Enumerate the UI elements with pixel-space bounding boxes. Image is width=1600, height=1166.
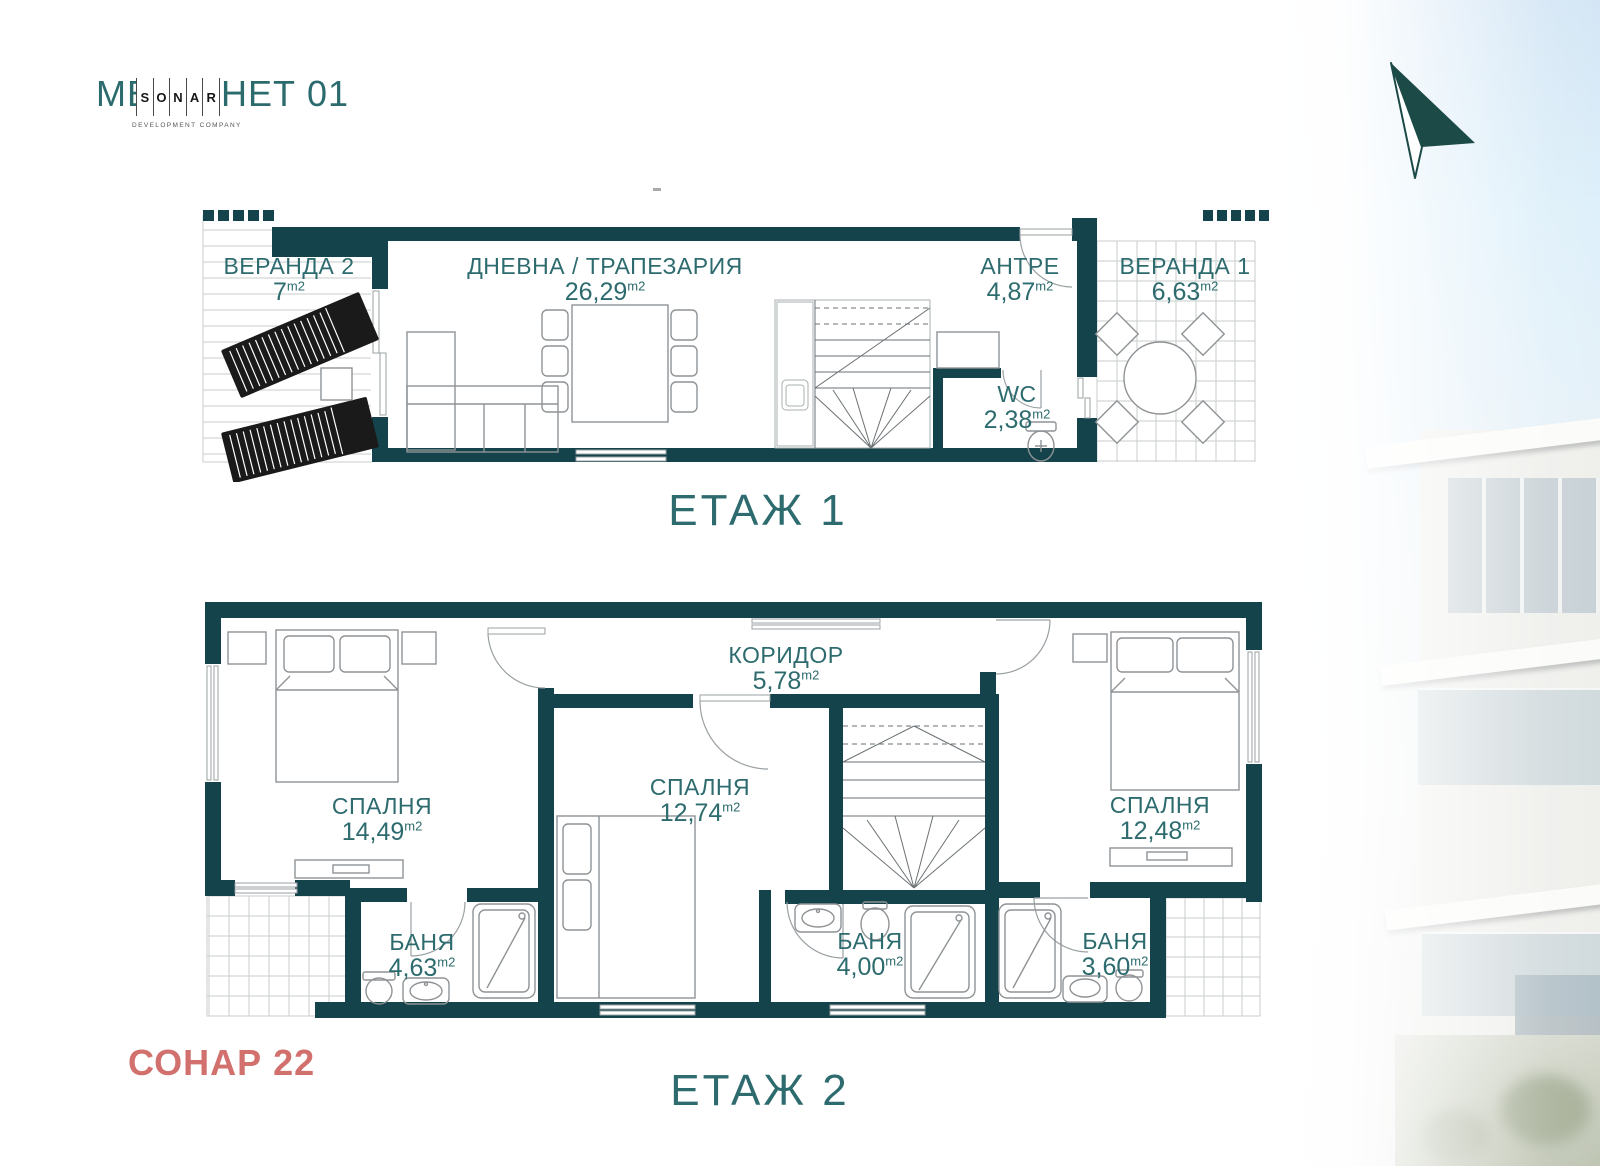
room-label-bedroom-3: СПАЛНЯ 12,48m2 [1065,793,1255,845]
room-name: ВЕРАНДА 2 [198,254,380,279]
area-unit: m2 [404,819,422,834]
kitchen-counter [937,332,999,368]
floorplan-page: МЕ НЕТ 01 S O N A R DEVELOPMENT COMPANY [0,0,1600,1166]
dining-set [542,305,697,422]
room-area-value: 7 [273,278,287,306]
room-area: 4,00m2 [785,954,955,981]
room-area: 7m2 [198,279,380,306]
room-name: СПАЛНЯ [605,775,795,800]
sonar-logo: S O N A R [136,78,220,116]
room-area: 4,87m2 [948,279,1092,306]
room-area: 12,74m2 [605,800,795,827]
area-unit: m2 [627,279,645,294]
area-unit: m2 [885,954,903,969]
room-label-bath-1: БАНЯ 4,63m2 [337,930,507,982]
room-area: 2,38m2 [947,407,1087,434]
sun-lounger [221,397,379,482]
area-unit: m2 [1200,279,1218,294]
staircase-f1 [775,300,930,448]
room-area-value: 4,63 [389,954,438,982]
sonar-letter: R [202,78,220,116]
sun-lounger [221,292,379,398]
area-unit: m2 [1130,954,1148,969]
area-unit: m2 [1035,279,1053,294]
room-area: 26,29m2 [455,279,755,306]
room-area: 5,78m2 [696,668,876,695]
room-label-wc: WC 2,38m2 [947,382,1087,434]
room-label-veranda-1: ВЕРАНДА 1 6,63m2 [1103,254,1267,306]
room-label-veranda-2: ВЕРАНДА 2 7m2 [198,254,380,306]
room-label-antre: АНТРЕ 4,87m2 [948,254,1092,306]
veranda1-dining-set [1096,313,1224,443]
room-label-bedroom-2: СПАЛНЯ 12,74m2 [605,775,795,827]
sonar-letter: S [136,78,153,116]
sonar-letter: A [186,78,203,116]
room-name: ВЕРАНДА 1 [1103,254,1267,279]
staircase-f2 [843,726,985,888]
floor1-title: ЕТАЖ 1 [628,486,888,536]
room-area: 12,48m2 [1065,818,1255,845]
room-area: 14,49m2 [287,819,477,846]
sonar-letter: N [169,78,186,116]
room-name: WC [947,382,1087,407]
room-name: КОРИДОР [696,643,876,668]
room-label-living-dining: ДНЕВНА / ТРАПЕЗАРИЯ 26,29m2 [455,254,755,306]
sonar-letter: O [153,78,170,116]
brand-text-right: НЕТ 01 [221,76,349,112]
sonar-tagline: DEVELOPMENT COMPANY [132,122,224,129]
room-area-value: 12,48 [1120,817,1183,845]
room-name: БАНЯ [337,930,507,955]
bedroom2-furniture [557,816,695,998]
room-name: ДНЕВНА / ТРАПЕЗАРИЯ [455,254,755,279]
balcony-tiles [207,896,350,1016]
room-label-bath-3: БАНЯ 3,60m2 [1030,929,1200,981]
room-name: БАНЯ [1030,929,1200,954]
room-area: 6,63m2 [1103,279,1267,306]
room-name: СПАЛНЯ [287,794,477,819]
area-unit: m2 [1182,818,1200,833]
room-area-value: 4,87 [987,278,1036,306]
room-area-value: 4,00 [837,953,886,981]
room-area: 3,60m2 [1030,954,1200,981]
area-unit: m2 [437,955,455,970]
room-label-bedroom-1: СПАЛНЯ 14,49m2 [287,794,477,846]
area-unit: m2 [1032,407,1050,422]
room-area: 4,63m2 [337,955,507,982]
room-area-value: 3,60 [1082,953,1131,981]
room-name: АНТРЕ [948,254,1092,279]
floor2-title: ЕТАЖ 2 [630,1066,890,1116]
room-label-corridor: КОРИДОР 5,78m2 [696,643,876,695]
room-name: СПАЛНЯ [1065,793,1255,818]
room-area-value: 6,63 [1152,278,1201,306]
area-unit: m2 [722,800,740,815]
sofa [407,332,558,452]
room-name: БАНЯ [785,929,955,954]
room-area-value: 14,49 [342,818,405,846]
watermark-sonar-22: СОНАР 22 [128,1042,315,1084]
room-area-value: 2,38 [984,406,1033,434]
room-area-value: 26,29 [565,278,628,306]
area-unit: m2 [287,279,305,294]
room-area-value: 5,78 [753,667,802,695]
side-table [321,368,352,400]
paper-plane-icon [1352,50,1487,185]
floor1-plan [195,182,1275,482]
room-area-value: 12,74 [660,799,723,827]
area-unit: m2 [801,668,819,683]
room-label-bath-2: БАНЯ 4,00m2 [785,929,955,981]
